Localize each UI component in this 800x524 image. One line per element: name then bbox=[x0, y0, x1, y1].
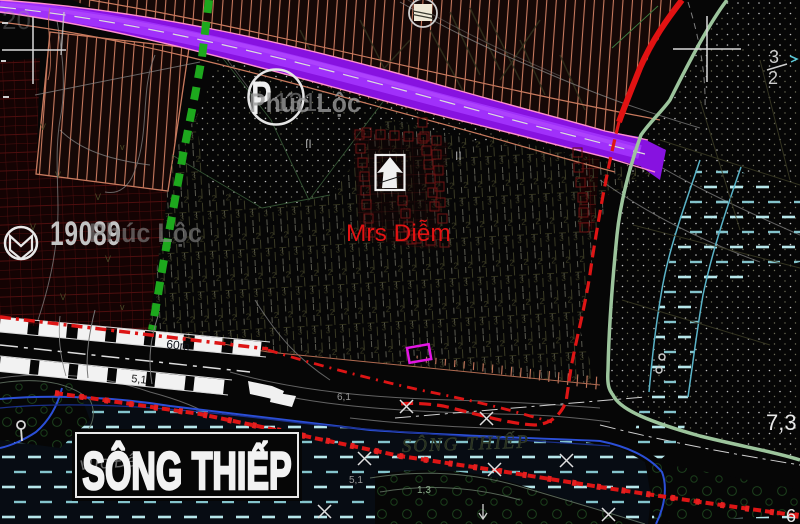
svg-text:Phúc Lộc: Phúc Lộc bbox=[249, 89, 361, 118]
svg-text:SÔNG THIẾP: SÔNG THIẾP bbox=[82, 440, 291, 501]
svg-text:v: v bbox=[120, 302, 125, 312]
svg-text:SÔNG THIẾP: SÔNG THIẾP bbox=[401, 431, 530, 457]
svg-text:60m: 60m bbox=[166, 337, 191, 353]
svg-text:6: 6 bbox=[786, 506, 796, 524]
svg-text:7,3: 7,3 bbox=[766, 410, 797, 435]
svg-text:20: 20 bbox=[2, 5, 31, 35]
svg-text:2: 2 bbox=[768, 68, 778, 88]
svg-text:5,1: 5,1 bbox=[349, 475, 363, 486]
svg-text:Phúc Lộc: Phúc Lộc bbox=[89, 217, 202, 248]
svg-text:Mrs Diễm: Mrs Diễm bbox=[346, 220, 451, 247]
svg-text:II: II bbox=[305, 137, 312, 151]
svg-text:6,1: 6,1 bbox=[337, 392, 351, 403]
svg-text:II: II bbox=[455, 149, 462, 163]
svg-text:V: V bbox=[95, 192, 101, 202]
svg-text:V: V bbox=[105, 254, 111, 264]
svg-text:V: V bbox=[40, 122, 46, 132]
svg-text:V: V bbox=[55, 170, 61, 180]
svg-text:1,3: 1,3 bbox=[417, 485, 431, 496]
svg-text:5,1: 5,1 bbox=[131, 373, 147, 387]
svg-text:3: 3 bbox=[769, 47, 779, 67]
svg-text:v: v bbox=[120, 142, 125, 152]
svg-text:V: V bbox=[60, 292, 66, 302]
